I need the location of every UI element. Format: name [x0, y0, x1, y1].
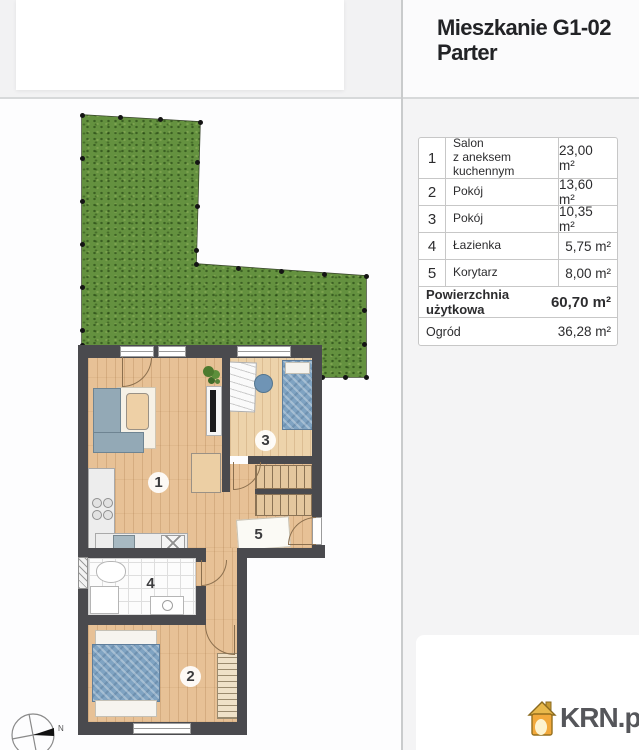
- wall-left: [78, 345, 88, 735]
- stove-burner: [103, 510, 113, 520]
- compass-rose: N: [5, 706, 69, 750]
- garden-area-row: Ogród 36,28 m²: [419, 318, 617, 345]
- room-label-text: 3: [261, 432, 269, 449]
- room-label-1: 1: [148, 472, 169, 493]
- compass-north-label: N: [58, 724, 64, 733]
- room-number: 2: [419, 179, 446, 205]
- floor-plan: 1 2 3 4 5 N: [0, 100, 403, 750]
- room-name: Korytarz: [446, 260, 559, 286]
- room-area: 23,00 m²: [559, 138, 617, 178]
- garden-label: Ogród: [419, 318, 519, 345]
- table-row: 2 Pokój 13,60 m²: [419, 179, 617, 206]
- table-row: 3 Pokój 10,35 m²: [419, 206, 617, 233]
- stairs-upper-flight: [255, 465, 312, 489]
- fence-post: [80, 242, 85, 247]
- fence-post: [195, 204, 200, 209]
- bed2-foot-blanket: [95, 700, 157, 717]
- floor-name: Parter: [437, 41, 627, 66]
- desk-chair: [254, 374, 273, 393]
- toilet: [96, 561, 126, 583]
- fence-post: [198, 120, 203, 125]
- window-room2: [133, 723, 191, 734]
- pillow-room3: [285, 362, 310, 374]
- room-label-text: 5: [254, 526, 262, 543]
- shower: [90, 586, 119, 614]
- room-name: Pokój: [446, 206, 559, 232]
- room-label-4: 4: [140, 573, 161, 594]
- stove-burner: [92, 498, 102, 508]
- room-name: Pokój: [446, 179, 559, 205]
- fence-post: [80, 156, 85, 161]
- wall-bathroom-top: [78, 548, 206, 558]
- dining-table: [191, 453, 221, 493]
- tv: [210, 390, 216, 432]
- room-label-3: 3: [255, 430, 276, 451]
- room-area: 8,00 m²: [559, 260, 617, 286]
- stairs-lower-flight: [255, 494, 312, 516]
- fence-post: [80, 113, 85, 118]
- bed-room2: [92, 644, 160, 702]
- room-name: Salon z aneksem kuchennym: [446, 138, 559, 178]
- room-label-2: 2: [180, 666, 201, 687]
- wall-living-room3-divider: [222, 358, 230, 492]
- horizontal-divider: [0, 97, 639, 99]
- room-number: 4: [419, 233, 446, 259]
- wall-stairs-mid: [255, 489, 312, 494]
- room-label-text: 4: [146, 575, 154, 592]
- room-number: 5: [419, 260, 446, 286]
- house-icon: [527, 699, 557, 737]
- fence-post: [118, 115, 123, 120]
- fence-post: [364, 274, 369, 279]
- total-area-row: Powierzchnia użytkowa 60,70 m²: [419, 287, 617, 318]
- rooms-area-table: 1 Salon z aneksem kuchennym 23,00 m² 2 P…: [418, 137, 618, 346]
- coffee-table: [126, 393, 149, 430]
- room-number: 1: [419, 138, 446, 178]
- stove-burner: [103, 498, 113, 508]
- fence-post: [236, 266, 241, 271]
- plant: [203, 366, 214, 377]
- stove-burner: [92, 510, 102, 520]
- wall-right-lower: [237, 548, 247, 735]
- room-name: Łazienka: [446, 233, 559, 259]
- window-room3: [237, 346, 291, 357]
- room-label-text: 1: [154, 474, 162, 491]
- table-row: 5 Korytarz 8,00 m²: [419, 260, 617, 287]
- wardrobe: [217, 653, 238, 719]
- apartment-id: Mieszkanie G1-02: [437, 16, 627, 41]
- fence-post: [80, 199, 85, 204]
- fence-post: [279, 269, 284, 274]
- sofa-chaise: [93, 432, 144, 453]
- room-label-5: 5: [248, 524, 269, 545]
- fence-post: [322, 272, 327, 277]
- washbasin-bowl: [162, 600, 173, 611]
- page-title: Mieszkanie G1-02 Parter: [437, 16, 627, 65]
- room-number: 3: [419, 206, 446, 232]
- fence-post: [158, 117, 163, 122]
- fence-post: [362, 342, 367, 347]
- table-row: 4 Łazienka 5,75 m²: [419, 233, 617, 260]
- table-row: 1 Salon z aneksem kuchennym 23,00 m²: [419, 138, 617, 179]
- blank-info-box: [16, 0, 344, 90]
- window-living: [158, 346, 186, 357]
- wall-hall-bottom: [237, 548, 325, 558]
- room-area: 10,35 m²: [559, 206, 617, 232]
- fence-post: [80, 285, 85, 290]
- wall-right-upper: [312, 345, 322, 517]
- krn-logo[interactable]: KRN.pl: [527, 699, 639, 737]
- desk: [227, 362, 257, 413]
- fence-post: [343, 375, 348, 380]
- krn-brand-text: KRN.pl: [560, 702, 639, 734]
- room-label-text: 2: [186, 668, 194, 685]
- total-area-label: Powierzchnia użytkowa: [419, 287, 519, 317]
- fence-post: [194, 262, 199, 267]
- garden-area-value: 36,28 m²: [519, 318, 618, 345]
- room-area: 13,60 m²: [559, 179, 617, 205]
- fence-post: [195, 160, 200, 165]
- fence-post: [362, 308, 367, 313]
- fence-post: [80, 328, 85, 333]
- fence-post: [194, 248, 199, 253]
- fence-post: [364, 375, 369, 380]
- pillow-room2: [95, 630, 157, 645]
- total-area-value: 60,70 m²: [519, 287, 618, 317]
- room-area: 5,75 m²: [559, 233, 617, 259]
- wall-bathroom-bottom: [78, 615, 206, 625]
- balcony-door-opening: [120, 346, 154, 357]
- bathroom-vent-window: [78, 557, 88, 589]
